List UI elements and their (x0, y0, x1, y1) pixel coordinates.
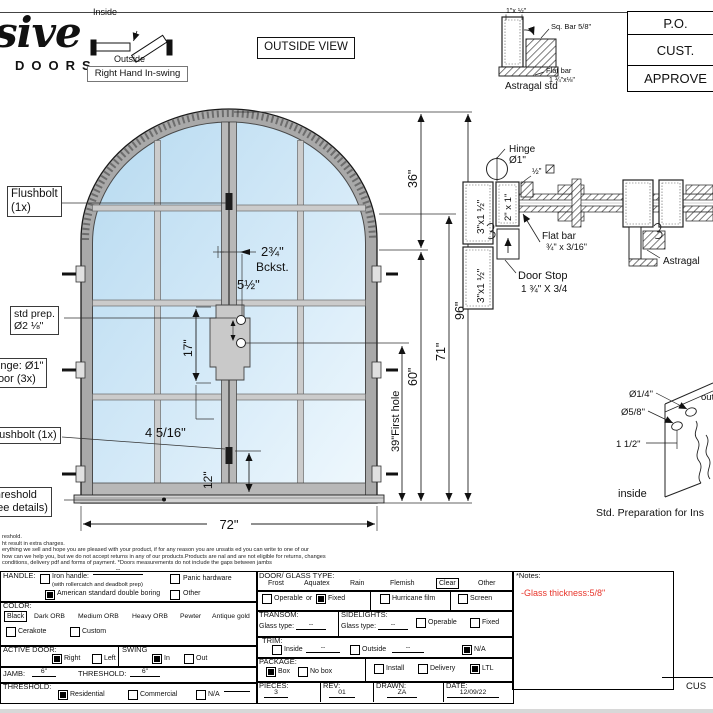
checkbox-package-box[interactable] (266, 667, 276, 677)
checkbox-panic-hardware[interactable] (170, 574, 180, 584)
view-label: OUTSIDE VIEW (257, 37, 355, 59)
checkbox-threshold-na[interactable] (196, 690, 206, 700)
glass-type-label: DOOR/ GLASS TYPE: (259, 572, 334, 580)
checkbox-package-nobox[interactable] (298, 667, 308, 677)
half-bar-label: ½" (532, 167, 542, 176)
checkbox-screen[interactable] (458, 594, 468, 604)
package-label: PACKAGE: (259, 658, 297, 666)
package-box-label: Box (278, 668, 290, 675)
sidelights-operable-label: Operable (428, 619, 457, 626)
panic-hardware-label: Panic hardware (183, 575, 232, 582)
checkbox-sidelights-operable[interactable] (416, 618, 426, 628)
drawn-value[interactable]: ZA (387, 689, 417, 698)
astragal-std-detail: 1"x ½" Sq. Bar 5/8" Flat bar 1 ¾"x⅛" Ast… (499, 7, 592, 92)
callout-std-prep: std prep. Ø2 ⅛" (10, 306, 59, 335)
checkbox-trim-inside[interactable] (272, 645, 282, 655)
iron-handle-sub: (with rollercatch and deadbolt prep) (52, 582, 143, 588)
prep-detail: Ø1/4" Ø5/8" 1 1/2" inside outside Std. P… (596, 383, 713, 519)
transom-glass-value[interactable]: -- (296, 621, 326, 630)
checkbox-iron-handle[interactable] (40, 574, 50, 584)
logo-wordmark: DOORS (15, 58, 98, 73)
glass-option-clear[interactable]: Clear (436, 578, 459, 589)
prep-dia-fiveeighths: Ø5/8" (621, 407, 645, 418)
package-divider (365, 657, 366, 681)
callout-hinge-line2: Door (3x) (0, 373, 43, 386)
astragal-sqbar-label: Sq. Bar 5/8" (551, 22, 592, 31)
trim-inside-value[interactable]: -- (306, 644, 340, 653)
sidelights-glass-value[interactable]: -- (378, 621, 408, 630)
swing-label: SWING (122, 646, 147, 654)
pieces-divider-3 (443, 681, 444, 702)
threshold-size-label: THRESHOLD: (78, 670, 126, 678)
jamb-label: JAMB: (3, 670, 25, 678)
swing-caption: Right Hand In-swing (87, 66, 188, 82)
threshold-na-blank[interactable] (224, 691, 250, 692)
approval-row-po[interactable]: P.O. (628, 12, 713, 35)
handle-other-label: Other (183, 590, 201, 597)
handle-label: HANDLE: (3, 572, 36, 580)
iron-handle-label: Iron handle: (52, 573, 89, 580)
jamb-section-detail: 3"x1 ½" 3"x1 ½" 2" x 1" Hinge Ø1" ½" Fla… (463, 144, 713, 309)
swing-out-label: Out (196, 655, 207, 662)
threshold-size-value[interactable]: 6" (130, 668, 160, 677)
glass-option-other[interactable]: Other (478, 580, 496, 587)
color-option-pewter[interactable]: Pewter (180, 613, 201, 620)
glass-option-aquatex[interactable]: Aquatex (304, 580, 330, 587)
active-right-label: Right (64, 655, 80, 662)
iron-handle-value[interactable]: -- (93, 566, 143, 575)
dim-backset-label: Bckst. (256, 260, 289, 274)
prep-outside-label: outside (701, 392, 713, 403)
threshold-na-label: N/A (208, 691, 220, 698)
callout-threshold-line1: Threshold (0, 489, 48, 502)
signature-line (662, 677, 713, 678)
checkbox-fixed[interactable] (316, 594, 326, 604)
sidelights-label: SIDELIGHTS: (341, 611, 388, 619)
trim-label: TRIM: (262, 637, 282, 645)
active-left-label: Left (104, 655, 116, 662)
callout-std-prep-line2: Ø2 ⅛" (14, 320, 55, 332)
checkbox-install[interactable] (374, 664, 384, 674)
bottom-gray-strip (0, 709, 713, 713)
hinge-dia-label: Ø1" (509, 155, 526, 166)
prep-dia-quarter: Ø1/4" (629, 389, 653, 400)
color-option-dark-orb[interactable]: Dark ORB (34, 613, 65, 620)
pieces-divider-2 (373, 681, 374, 702)
color-section (0, 601, 258, 647)
callout-flushbolt-top-line2: (1x) (11, 202, 58, 216)
logo-script: sive (0, 8, 81, 57)
checkbox-handle-other[interactable] (170, 590, 180, 600)
callout-threshold-line2: (see details) (0, 502, 48, 515)
hurricane-film-label: Hurricane film (392, 595, 435, 602)
cerakote-label: Cerakote (18, 628, 46, 635)
dim-first-hole: 39"First hole (390, 391, 402, 452)
approval-row-approve[interactable]: APPROVE (628, 66, 713, 91)
prep-dim-oneandhalf: 1 1/2" (616, 439, 641, 450)
dim-17: 17" (181, 339, 195, 357)
notes-title: *Notes: (516, 572, 541, 580)
glass-option-frost[interactable]: Frost (268, 580, 284, 587)
checkbox-swing-out[interactable] (184, 654, 194, 664)
checkbox-cerakote[interactable] (6, 627, 16, 637)
astragal-tube-dim: 1"x ½" (506, 7, 527, 15)
callout-flushbolt-top-line1: Flushbolt (11, 188, 58, 202)
disclaimer-line-1: reshold. (2, 534, 22, 540)
callout-std-prep-line1: std prep. (14, 308, 55, 320)
callout-hinge-line1: Hinge: Ø1" (0, 360, 43, 373)
operable-label: Operable (274, 595, 303, 602)
callout-flushbolt-top: Flushbolt (1x) (7, 186, 62, 217)
threshold-label: THRESHOLD: (3, 683, 51, 691)
drawing-sheet: 1"x ½" Sq. Bar 5/8" Flat bar 1 ¾"x⅛" Ast… (0, 0, 713, 713)
dim-12: 12" (201, 471, 215, 489)
fixed-label: Fixed (328, 595, 345, 602)
trim-inside-label: Inside (284, 646, 303, 653)
sidelights-fixed-label: Fixed (482, 619, 499, 626)
ltl-label: LTL (482, 665, 494, 672)
sidelights-glass-label: Glass type: (341, 623, 376, 630)
checkbox-american-standard[interactable] (45, 590, 55, 600)
operable-or-label: or (306, 595, 312, 602)
dim-hole-spacing: 5½" (237, 277, 260, 292)
signature-label: CUS (686, 682, 706, 692)
notes-glass-thickness: -Glass thickness:5/8" (521, 588, 605, 598)
color-option-antique-gold[interactable]: Antique gold (212, 613, 250, 620)
delivery-label: Delivery (430, 665, 455, 672)
jamb-profile-label-1: 3"x1 ½" (476, 199, 487, 234)
dim-4516: 4 5/16" (145, 425, 186, 440)
swing-outside-label: Outside (114, 55, 145, 64)
residential-label: Residential (70, 691, 105, 698)
glass-option-flemish[interactable]: Flemish (390, 580, 415, 587)
color-option-heavy-orb[interactable]: Heavy ORB (132, 613, 168, 620)
prep-caption: Std. Preparation for Ins (596, 507, 704, 519)
prep-inside-label: inside (618, 488, 647, 500)
checkbox-swing-in[interactable] (152, 654, 162, 664)
checkbox-custom-color[interactable] (70, 627, 80, 637)
pieces-divider-1 (320, 681, 321, 702)
swing-in-label: In (164, 655, 170, 662)
glass-option-rain[interactable]: Rain (350, 580, 364, 587)
checkbox-operable[interactable] (262, 594, 272, 604)
callout-threshold: Threshold (see details) (0, 487, 52, 517)
operable-divider-2 (450, 590, 451, 610)
chec kbox-active-left[interactable] (92, 654, 102, 664)
dim-60: 60" (406, 368, 420, 386)
operable-divider-1 (370, 590, 371, 610)
active-door-label: ACTIVE DOOR: (3, 646, 57, 654)
screen-label: Screen (470, 595, 492, 602)
trim-outside-label: Outside (362, 646, 386, 653)
disclaimer-line-2: ht result in extra charges. (2, 541, 65, 547)
date-value[interactable]: 12/09/22 (447, 689, 499, 698)
disclaimer-line-3: erything we sell and hope you are please… (2, 547, 309, 553)
astragal-flatbar-label: Flat bar (546, 66, 572, 75)
astragal-label: Astragal (663, 256, 700, 267)
active-swing-divider (118, 645, 119, 666)
jamb-value[interactable]: 6" (32, 668, 56, 677)
checkbox-residential[interactable] (58, 690, 68, 700)
dim-36: 36" (406, 170, 420, 188)
flat-bar-dim: ¾" x 3/16" (546, 242, 587, 252)
transom-glass-label: Glass type: (259, 623, 294, 630)
astragal-caption: Astragal std (505, 81, 558, 92)
checkbox-trim-na[interactable] (462, 645, 472, 655)
rev-value[interactable]: 01 (329, 689, 355, 698)
american-standard-label: American standard double boring (57, 590, 160, 597)
checkbox-trim-outside[interactable] (350, 645, 360, 655)
custom-color-label: Custom (82, 628, 106, 635)
package-nobox-label: No box (310, 668, 332, 675)
tube-label: 2" x 1" (503, 194, 514, 221)
color-option-medium-orb[interactable]: Medium ORB (78, 613, 119, 620)
callout-hinge: Hinge: Ø1" Door (3x) (0, 358, 47, 388)
jamb-profile-label-2: 3"x1 ½" (476, 268, 487, 303)
door-stop-dim: 1 ¾" X 3/4 (521, 284, 568, 295)
color-label: COLOR: (3, 602, 32, 610)
commercial-label: Commercial (140, 691, 177, 698)
swing-inside-label: Inside (93, 8, 117, 17)
dim-backset: 2¾" (261, 244, 284, 259)
pieces-value[interactable]: 3 (264, 689, 288, 698)
checkbox-commercial[interactable] (128, 690, 138, 700)
callout-flushbolt-bottom: Flushbolt (1x) (0, 427, 61, 444)
checkbox-hurricane-film[interactable] (380, 594, 390, 604)
approval-table: P.O. CUST. APPROVE (627, 11, 713, 92)
trim-outside-value[interactable]: -- (392, 644, 424, 653)
transom-label: TRANSOM: (259, 611, 299, 619)
flat-bar-label: Flat bar (542, 231, 577, 242)
hinge-label: Hinge (509, 144, 536, 155)
trim-na-label: N/A (474, 646, 486, 653)
checkbox-delivery[interactable] (418, 664, 428, 674)
checkbox-sidelights-fixed[interactable] (470, 618, 480, 628)
approval-row-cust[interactable]: CUST. (628, 35, 713, 66)
disclaimer-line-4: how can we help you, but we do not accep… (2, 554, 326, 560)
door-elevation (62, 109, 398, 503)
checkbox-active-right[interactable] (52, 654, 62, 664)
door-stop-label: Door Stop (518, 270, 568, 282)
transom-divider (338, 610, 339, 636)
color-option-black[interactable]: Black (4, 611, 27, 622)
checkbox-ltl[interactable] (470, 664, 480, 674)
dim-71: 71" (434, 343, 448, 361)
dim-width: 72" (219, 517, 238, 532)
install-label: Install (386, 665, 404, 672)
